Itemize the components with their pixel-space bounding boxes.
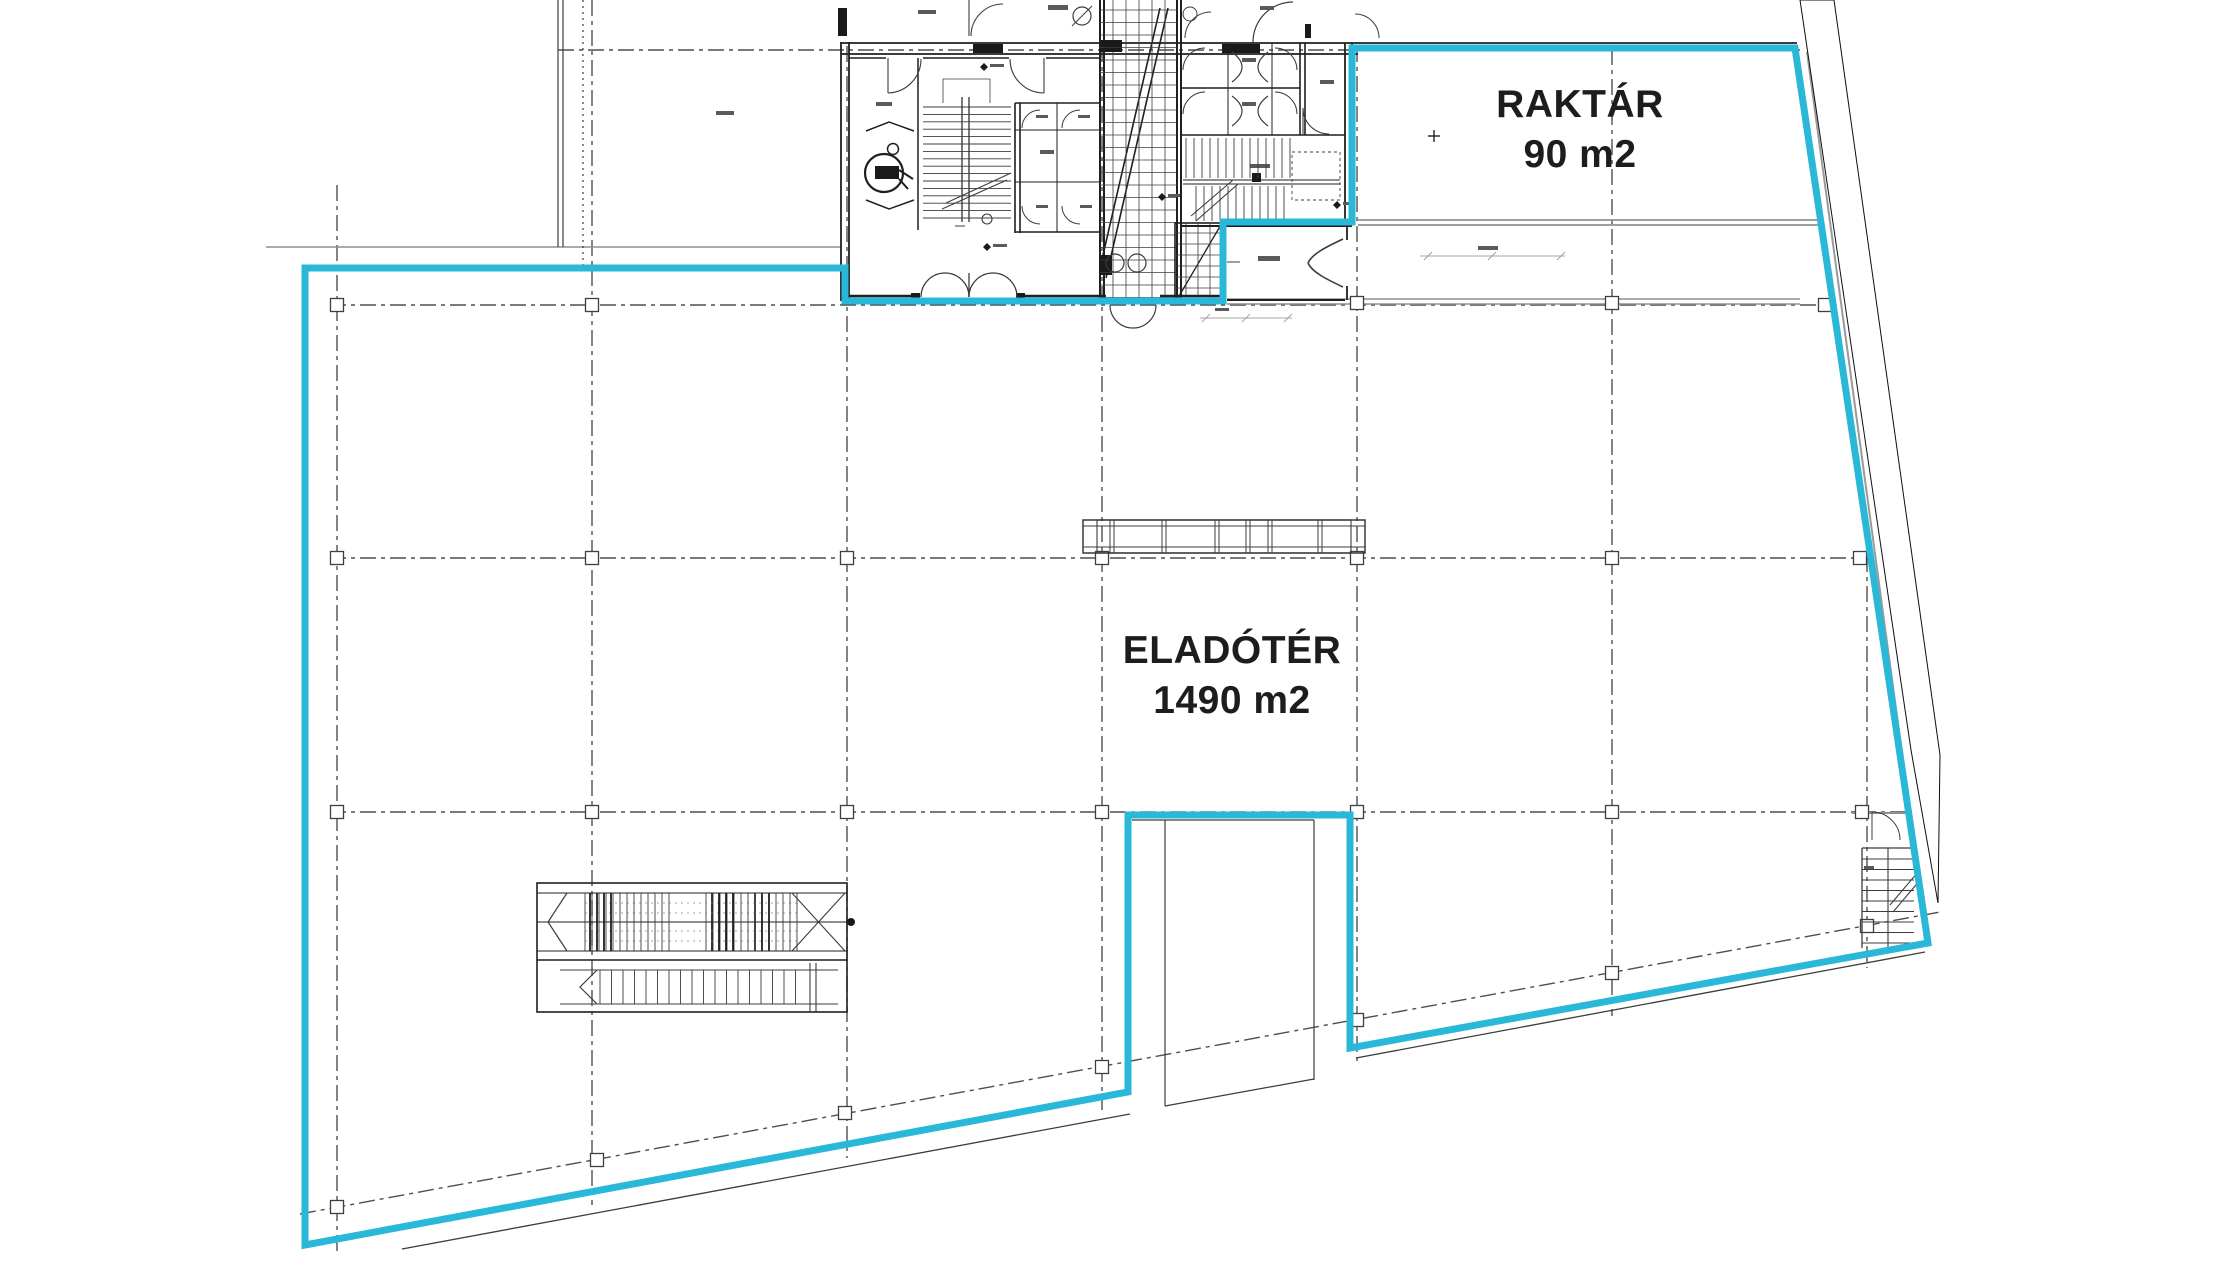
wheelchair-icon	[865, 102, 914, 209]
secondary-shaft	[1175, 223, 1222, 303]
dimension-marks	[1200, 246, 1565, 322]
floor-plan-drawing	[0, 0, 2222, 1280]
wc-cubicles-right	[1181, 43, 1345, 135]
floor-plan: RAKTÁR 90 m2 ELADÓTÉR 1490 m2	[0, 0, 2222, 1280]
facade-band	[1800, 0, 1940, 930]
premise-outline	[305, 48, 1928, 1245]
slab-edge-lines	[266, 220, 1906, 813]
upper-floor-lines	[558, 0, 734, 266]
column-grid	[300, 0, 1940, 1252]
eladoter-title: ELADÓTÉR	[1123, 626, 1342, 676]
guardrail	[1083, 520, 1365, 553]
raktar-label: RAKTÁR 90 m2	[1496, 80, 1664, 180]
wide-staircase	[1181, 138, 1352, 226]
raktar-title: RAKTÁR	[1496, 80, 1664, 130]
wc-cubicles-left	[1015, 103, 1100, 233]
vestibule	[1227, 225, 1347, 300]
raktar-area: 90 m2	[1496, 130, 1664, 180]
top-strip-rooms	[918, 0, 1379, 42]
main-staircase	[923, 79, 1011, 226]
eladoter-label: ELADÓTÉR 1490 m2	[1123, 626, 1342, 726]
escalator-block	[537, 883, 855, 1012]
eladoter-area: 1490 m2	[1123, 676, 1342, 726]
escalator-shaft	[1100, 0, 1181, 303]
